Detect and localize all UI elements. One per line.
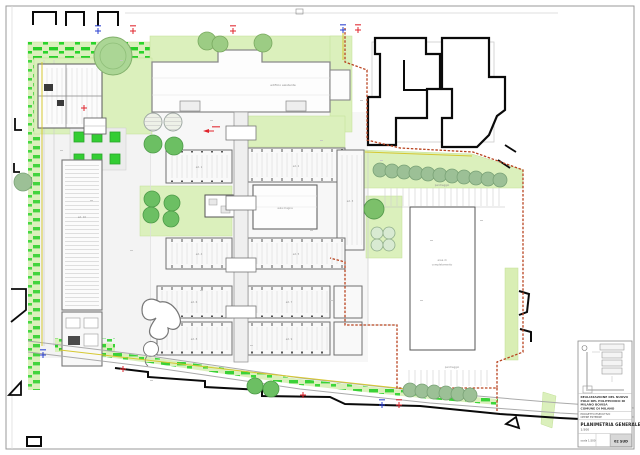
building-label: ed. 3 [347, 199, 354, 203]
tree-outline [383, 239, 395, 251]
building-ed-3: ed. 3 [337, 150, 364, 250]
parking-lower-label: parcheggio [445, 365, 460, 369]
building-label: ed. 6 [191, 300, 198, 304]
future-area: area di completamento [410, 207, 475, 350]
building-ed-5: ed. 5 [248, 238, 345, 269]
future-area-label-2: completamento [432, 263, 453, 267]
building-label: ed. 8 [191, 337, 198, 341]
tree [254, 34, 272, 52]
tree [143, 207, 159, 223]
tree [364, 199, 384, 219]
tree [263, 381, 279, 397]
tree [144, 191, 160, 207]
tree-outline [371, 227, 383, 239]
building-label: ed. 7 [286, 300, 293, 304]
sheet-code: 02 SUD [614, 440, 628, 444]
building-label: ed. 2 [293, 164, 300, 168]
future-area-label-1: area di [438, 258, 447, 262]
tree [14, 173, 32, 191]
tree-outline [383, 227, 395, 239]
site-plan-svg: parcheggio parcheggio ed. 10 edificio es… [0, 0, 640, 455]
building-top-left [38, 64, 106, 134]
building-existing-label: edificio esistente [270, 83, 296, 87]
building-ed-9: ed. 9 [248, 322, 330, 355]
building-hall: aula magna [253, 185, 317, 229]
parking-stalls-upper [382, 188, 500, 206]
building-ed-7: ed. 7 [248, 286, 330, 318]
round-planter-hatch [144, 113, 162, 131]
building-stub [334, 322, 362, 355]
building-stub [334, 286, 362, 318]
subtitle-line-2: OPERE ESTERNE [581, 415, 603, 419]
tree [164, 195, 180, 211]
bottom-left-label: scala 1:500 [581, 439, 596, 443]
parking-upper-label: parcheggio [435, 183, 450, 187]
building-label: ed. 9 [286, 337, 293, 341]
building-left-long: ed. 10 [62, 160, 102, 366]
building-label: ed. 4 [196, 252, 203, 256]
tree [144, 135, 162, 153]
tree-outline [371, 239, 383, 251]
building-label: ed. 5 [293, 252, 300, 256]
hall-label: aula magna [277, 206, 293, 210]
building-left-label: ed. 10 [78, 215, 87, 219]
building-ed-4: ed. 4 [166, 238, 232, 269]
drawing-sheet: parcheggio parcheggio ed. 10 edificio es… [0, 0, 640, 455]
drawing-title: PLANIMETRIA GENERALE [581, 422, 640, 427]
parking-stalls-lower [408, 370, 492, 386]
building-label: ed. 1 [196, 165, 203, 169]
tree [165, 137, 183, 155]
scale-label: 1:500 [581, 428, 590, 432]
project-title-line-4: COMUNE DI MILANO [581, 406, 615, 410]
title-block: REALIZZAZIONE DEL NUOVO POLO DEL POLITEC… [578, 341, 640, 447]
tree [463, 388, 477, 402]
tree [247, 378, 263, 394]
round-planter-hatch [164, 113, 182, 131]
tree [163, 211, 179, 227]
building-ed-2: ed. 2 [248, 148, 345, 182]
tree [493, 173, 507, 187]
tree [212, 36, 228, 52]
